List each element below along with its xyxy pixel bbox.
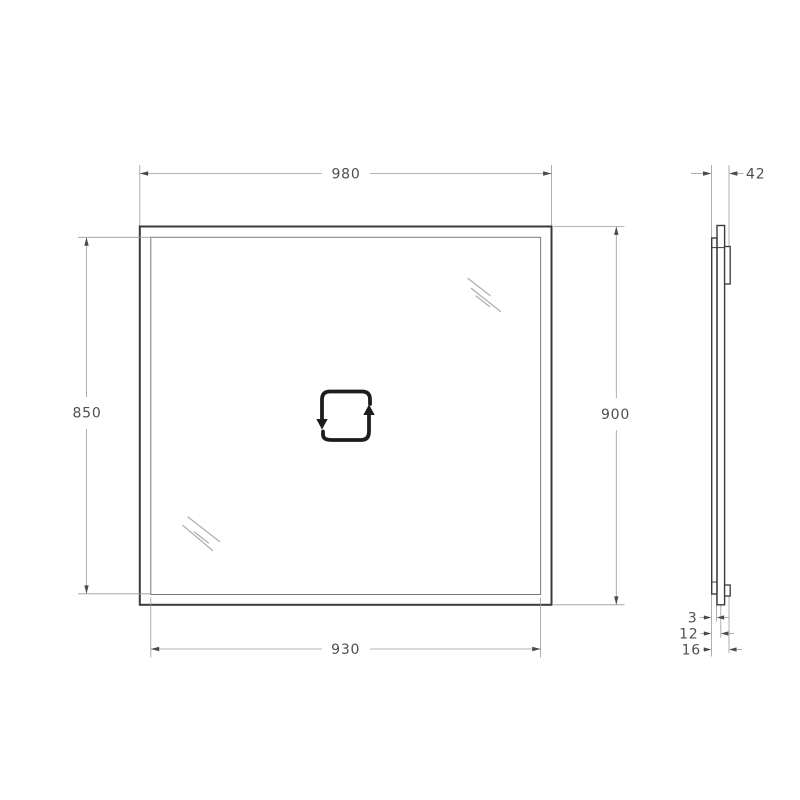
dimension-arrowhead	[704, 631, 712, 635]
technical-drawing-canvas: 980 930 850 900	[0, 0, 800, 800]
dimension-arrowhead	[704, 647, 712, 651]
mirror-inner-edge	[151, 237, 541, 594]
dim-label-total-depth: 42	[746, 166, 765, 182]
front-view	[140, 227, 552, 605]
dimension-arrowhead	[614, 227, 618, 235]
dimension-arrowhead	[729, 171, 737, 175]
mirror-technical-drawing: 980 930 850 900	[0, 0, 800, 800]
dimension-bottom-width: 930	[151, 598, 541, 658]
dimension-arrowhead	[703, 171, 711, 175]
dimension-arrowhead	[704, 615, 712, 619]
dimension-total-depth: 42	[691, 166, 765, 182]
dim-label-mid-depth: 12	[679, 626, 698, 642]
dimension-mid-depth: 12	[679, 626, 734, 642]
dim-label-glass-thickness: 3	[688, 610, 698, 626]
side-back-frame	[717, 226, 725, 605]
dimension-arrowhead	[84, 237, 88, 245]
dim-label-bottom-width: 930	[331, 642, 360, 658]
dimension-arrowhead	[532, 647, 540, 651]
dimension-arrowhead	[84, 585, 88, 593]
side-view	[711, 165, 730, 657]
side-bracket-top	[725, 247, 731, 285]
dim-label-top-width: 980	[331, 166, 360, 182]
dimension-arrowhead	[614, 596, 618, 604]
dimension-arrowhead	[721, 631, 729, 635]
dimension-arrowhead	[543, 171, 551, 175]
dim-label-right-height: 900	[601, 407, 630, 423]
dimension-glass-thickness: 3	[688, 610, 730, 626]
dim-label-frame-depth: 16	[682, 642, 701, 658]
dimension-arrowhead	[729, 647, 737, 651]
dimension-right-height: 900	[554, 227, 631, 605]
dimension-arrowhead	[151, 647, 159, 651]
dim-label-left-height: 850	[72, 405, 101, 421]
dimension-top-width: 980	[140, 165, 552, 226]
side-bracket-bottom	[725, 585, 731, 596]
side-glass-panel	[712, 238, 717, 594]
dimension-arrowhead	[140, 171, 148, 175]
